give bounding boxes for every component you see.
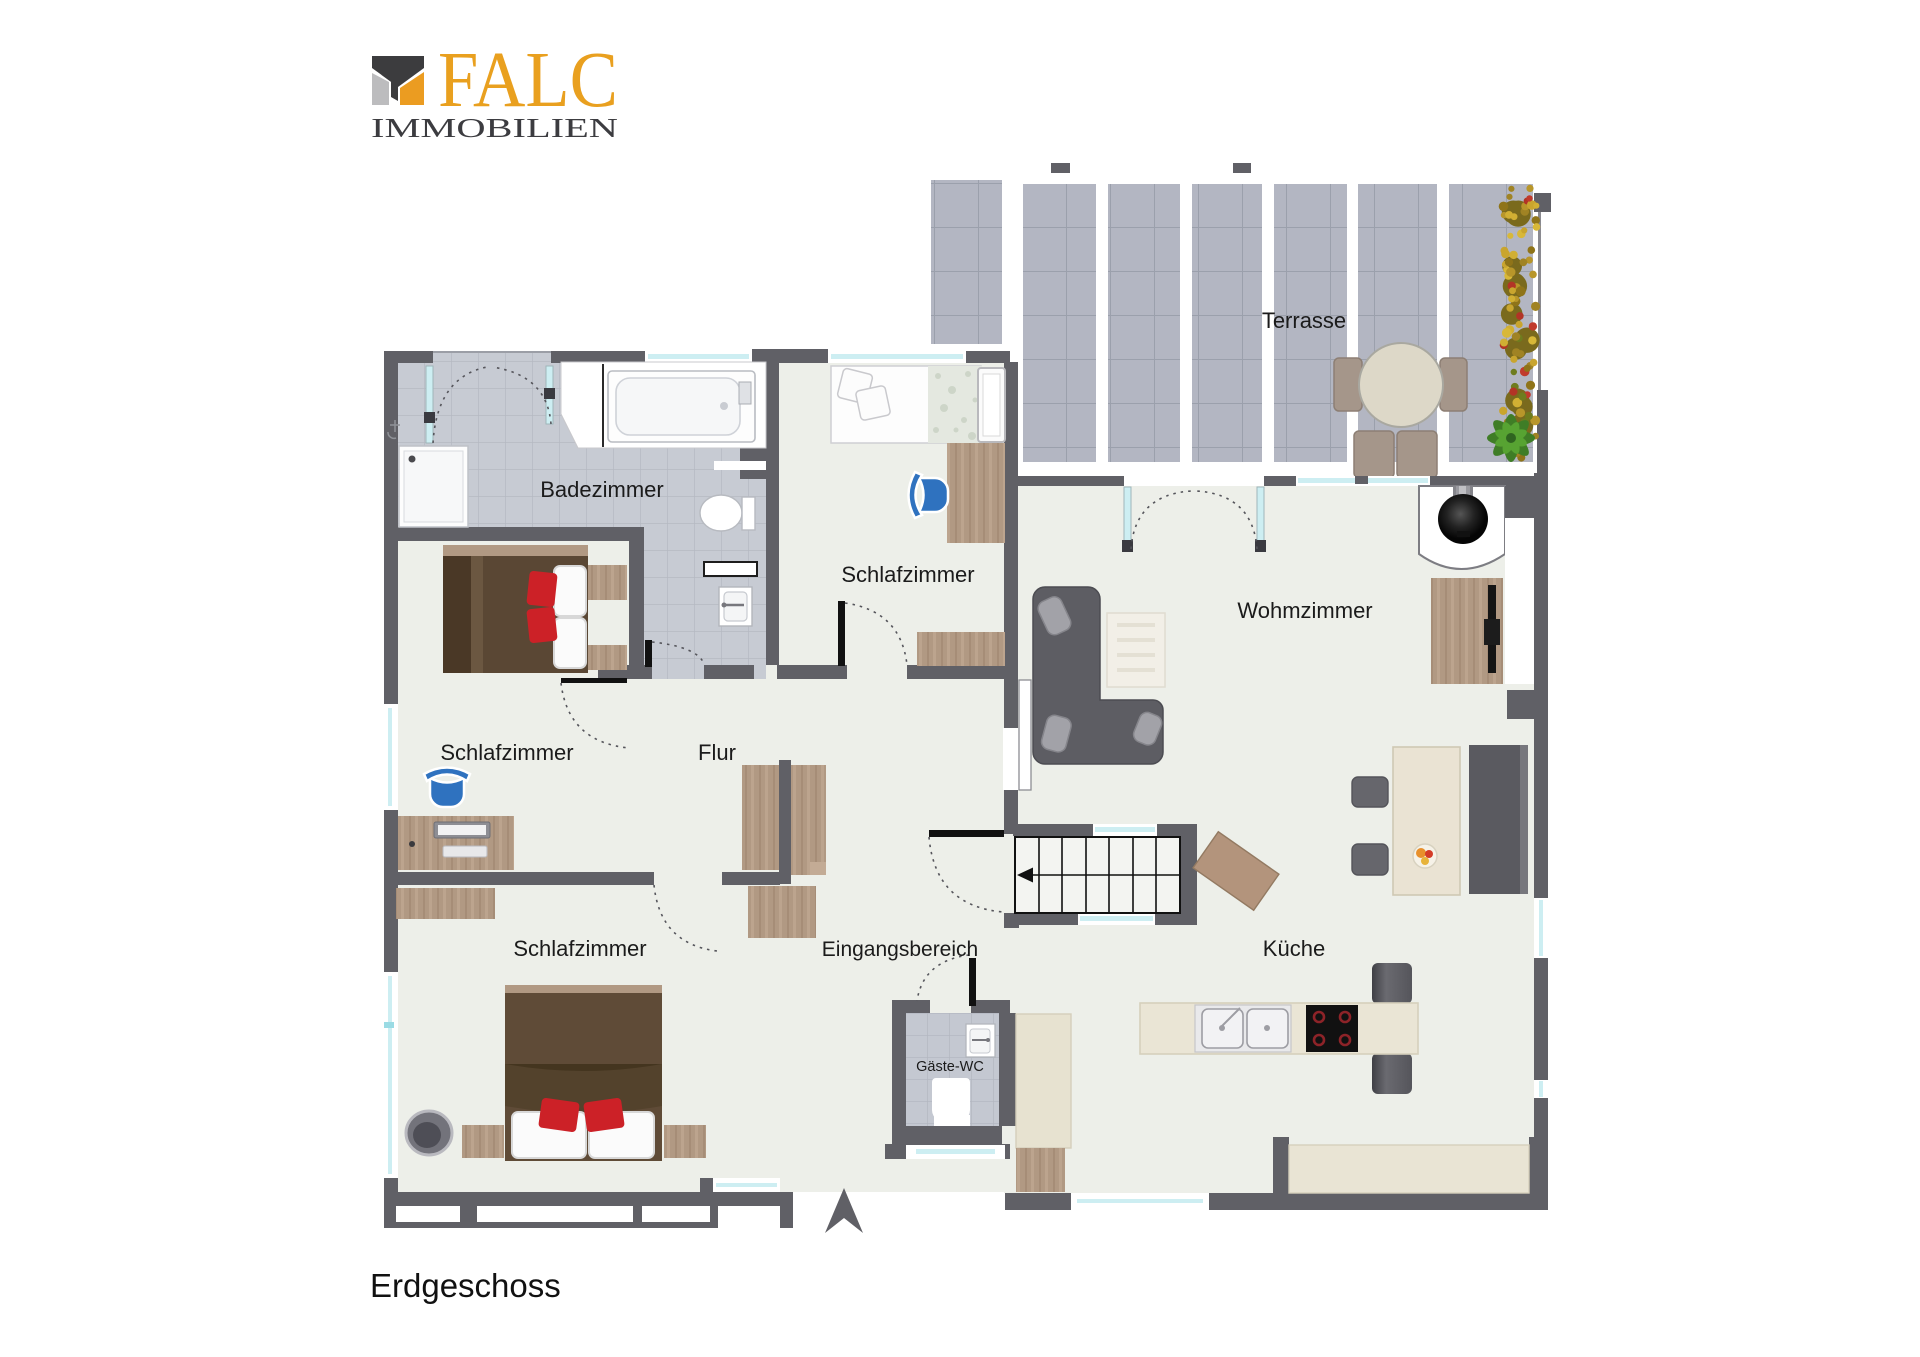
svg-text:Küche: Küche: [1263, 936, 1325, 961]
svg-text:Gäste-WC: Gäste-WC: [916, 1059, 984, 1075]
svg-text:Wohmzimmer: Wohmzimmer: [1237, 598, 1372, 623]
svg-text:Schlafzimmer: Schlafzimmer: [440, 740, 573, 765]
svg-text:IMMOBILIEN: IMMOBILIEN: [371, 113, 618, 143]
svg-text:FALC: FALC: [438, 37, 618, 124]
svg-text:Terrasse: Terrasse: [1262, 308, 1346, 333]
svg-text:Flur: Flur: [698, 740, 736, 765]
svg-text:Badezimmer: Badezimmer: [540, 477, 663, 502]
svg-text:Schlafzimmer: Schlafzimmer: [513, 936, 646, 961]
svg-text:Eingangsbereich: Eingangsbereich: [822, 938, 978, 961]
svg-text:Erdgeschoss: Erdgeschoss: [370, 1267, 561, 1304]
svg-text:Schlafzimmer: Schlafzimmer: [841, 562, 974, 587]
